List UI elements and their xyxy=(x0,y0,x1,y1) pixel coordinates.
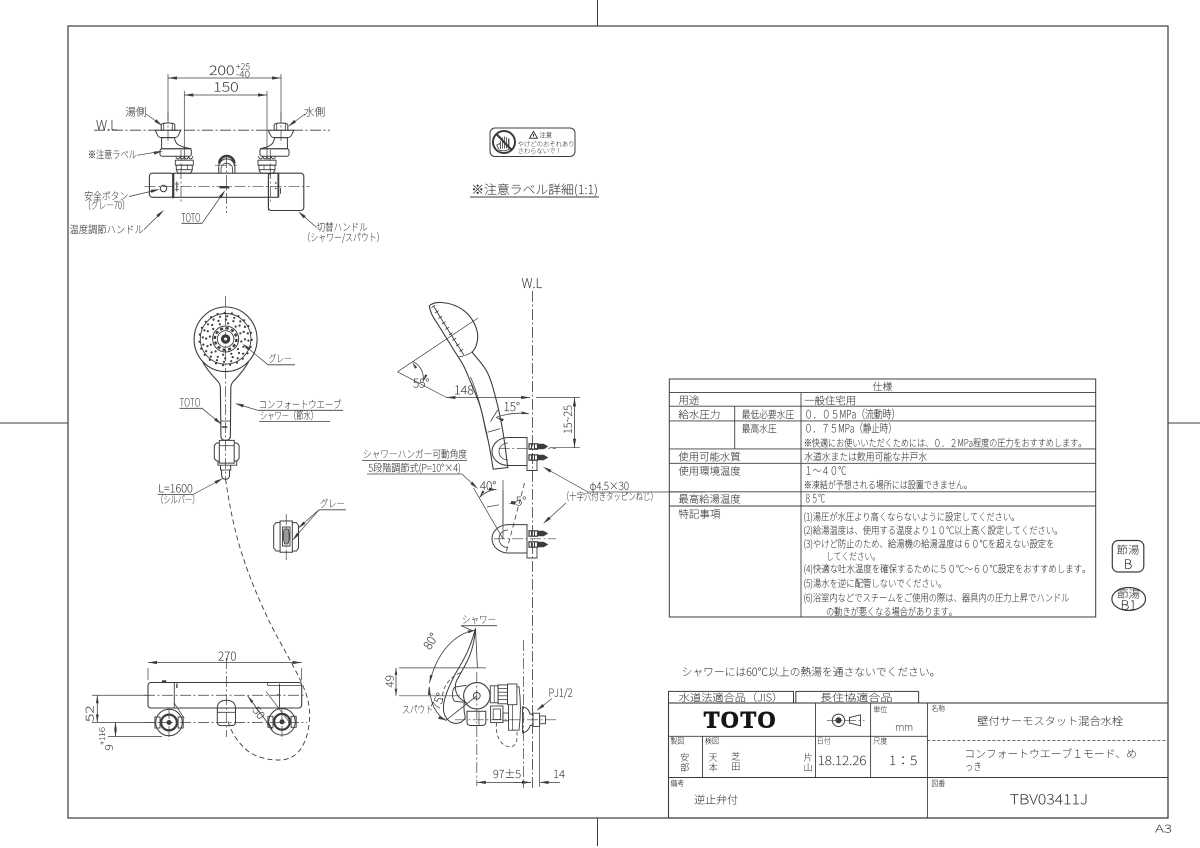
svg-text:TOTO: TOTO xyxy=(704,707,777,733)
